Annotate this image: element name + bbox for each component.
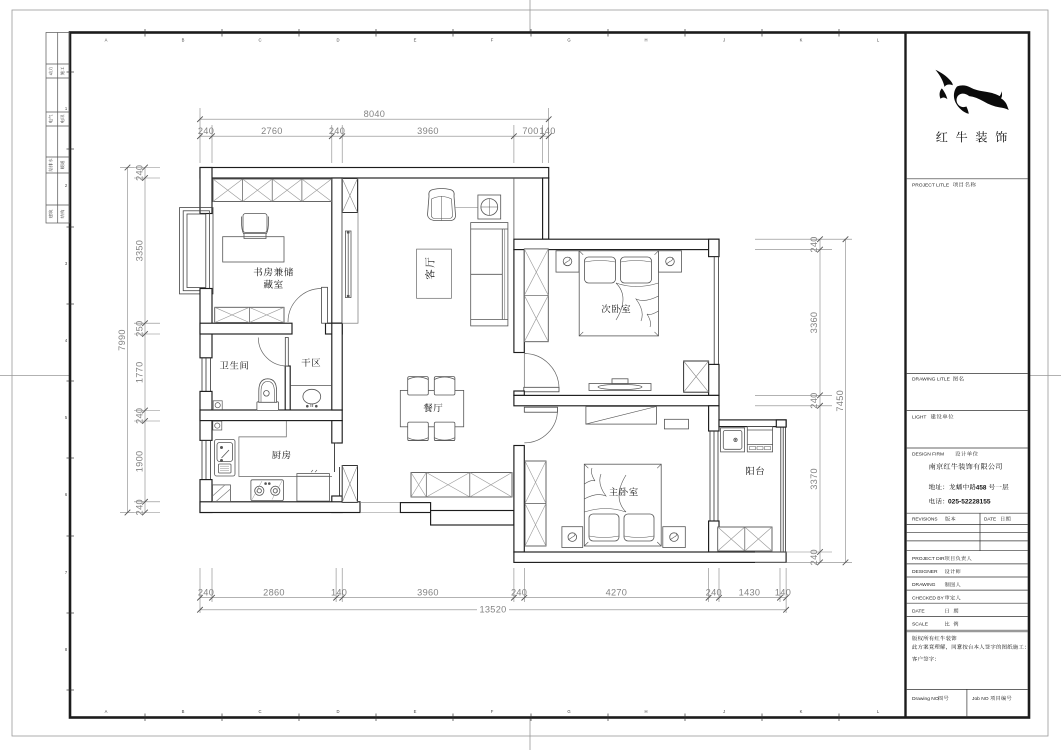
svg-text:1770: 1770 [135,361,145,383]
svg-text:140: 140 [775,587,791,597]
svg-text:8040: 8040 [364,109,386,119]
svg-text:B: B [182,38,185,43]
svg-text:4270: 4270 [606,587,628,597]
svg-text:D: D [336,709,339,714]
svg-text:PROJECT LITLE: PROJECT LITLE [912,182,950,188]
svg-text:G: G [567,709,570,714]
svg-text:D: D [336,38,339,43]
svg-text:DRAWING LITLE: DRAWING LITLE [912,377,951,383]
svg-text:240: 240 [135,165,145,181]
svg-text:3370: 3370 [809,468,819,490]
svg-text:3350: 3350 [135,240,145,262]
svg-text:DATE: DATE [984,517,996,522]
svg-text:DATE: DATE [912,609,925,615]
svg-text:E: E [414,38,417,43]
svg-text:1900: 1900 [135,451,145,473]
svg-text:PROJECT DIR: PROJECT DIR [912,556,945,562]
svg-text:3360: 3360 [809,312,819,334]
svg-text:G: G [567,38,570,43]
svg-text:240: 240 [329,126,345,136]
svg-text:DESIGNER: DESIGNER [912,569,938,575]
svg-text:240: 240 [511,587,527,597]
svg-text:140: 140 [539,126,555,136]
svg-text:E: E [414,709,417,714]
svg-text:DESIGN FIRM: DESIGN FIRM [912,452,944,458]
svg-text:LIGHT: LIGHT [912,414,926,420]
svg-text:REVISIONS: REVISIONS [912,517,938,522]
svg-text:C: C [258,709,261,714]
svg-text:240: 240 [706,587,722,597]
svg-text:Job NO: Job NO [972,696,989,702]
svg-text:458: 458 [976,484,987,491]
svg-text:A: A [105,709,108,714]
svg-text:240: 240 [135,408,145,424]
svg-text:Drawing NO: Drawing NO [912,696,939,702]
svg-text:J: J [723,38,725,43]
svg-text:J: J [723,709,725,714]
svg-text:H: H [644,38,647,43]
svg-text:K: K [800,709,803,714]
svg-text:025-52228155: 025-52228155 [948,499,991,506]
svg-text:13520: 13520 [479,605,506,615]
svg-text:240: 240 [809,392,819,408]
svg-text:3960: 3960 [417,587,439,597]
svg-text:H: H [644,709,647,714]
svg-text:240: 240 [809,549,819,565]
svg-text:2860: 2860 [263,587,285,597]
svg-text:700: 700 [522,126,538,136]
svg-text:250: 250 [135,320,145,336]
svg-text:140: 140 [331,587,347,597]
svg-text:A: A [105,38,108,43]
svg-text:F: F [491,709,494,714]
svg-text:B: B [182,709,185,714]
svg-text:240: 240 [809,236,819,252]
svg-text:DRAWING: DRAWING [912,582,936,588]
svg-text:7450: 7450 [835,390,845,412]
svg-text:CHECKED BY: CHECKED BY [912,595,945,601]
svg-text:1430: 1430 [739,587,761,597]
svg-text:3960: 3960 [417,126,439,136]
svg-text:7990: 7990 [117,329,127,351]
svg-text:2760: 2760 [261,126,283,136]
svg-text:SCALE: SCALE [912,622,929,628]
svg-text:240: 240 [198,587,214,597]
svg-text:K: K [800,38,803,43]
svg-text:F: F [491,38,494,43]
svg-text:C: C [258,38,261,43]
svg-text:240: 240 [198,126,214,136]
svg-text:240: 240 [135,499,145,515]
